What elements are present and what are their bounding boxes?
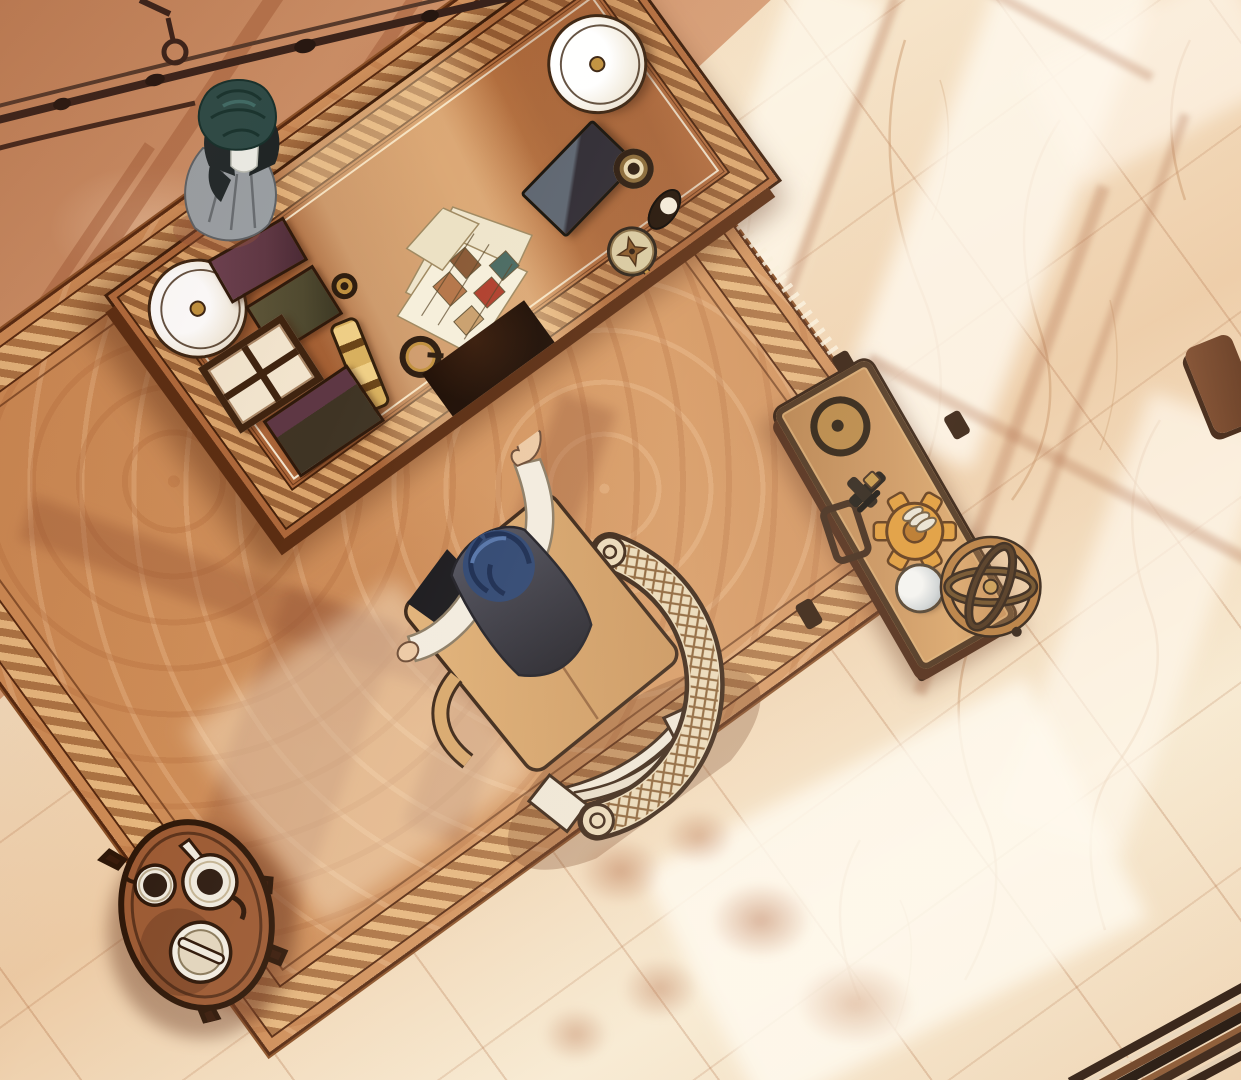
illustration-study-room-overhead xyxy=(0,0,1241,1080)
cast-silhouette-shadows xyxy=(520,700,1080,1080)
railing-ring xyxy=(164,41,186,63)
railing-top-left xyxy=(0,0,620,200)
tray-divider xyxy=(224,348,300,401)
